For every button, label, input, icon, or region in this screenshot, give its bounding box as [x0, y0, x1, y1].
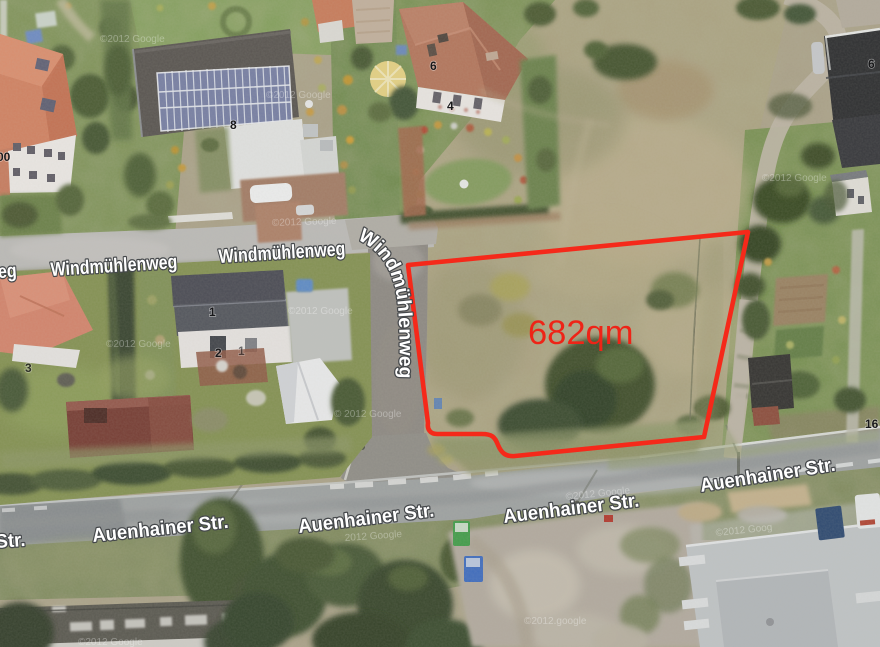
svg-text:©2012 Google: ©2012 Google — [100, 34, 165, 45]
svg-text:©2012 Google: ©2012 Google — [762, 173, 827, 184]
svg-text:©2012 Google: ©2012 Google — [288, 306, 353, 317]
svg-text:©2012 Google: ©2012 Google — [266, 90, 331, 101]
svg-text:16: 16 — [865, 417, 879, 431]
svg-text:©2012 Google: ©2012 Google — [272, 216, 337, 229]
svg-text:00: 00 — [0, 150, 11, 164]
svg-text:©2012 Google: ©2012 Google — [78, 637, 143, 647]
svg-text:6: 6 — [868, 57, 875, 71]
svg-text:682qm: 682qm — [528, 314, 634, 352]
svg-text:3: 3 — [25, 361, 32, 375]
svg-text:© 2012 Google: © 2012 Google — [334, 409, 402, 420]
svg-text:8: 8 — [230, 118, 237, 132]
svg-text:1: 1 — [238, 344, 245, 358]
svg-text:2: 2 — [215, 346, 222, 360]
svg-text:©2012.google: ©2012.google — [524, 616, 587, 627]
svg-text:1: 1 — [209, 305, 216, 319]
svg-text:weg: weg — [0, 259, 17, 283]
svg-text:6: 6 — [430, 59, 437, 73]
svg-text:4: 4 — [447, 99, 454, 113]
svg-text:Str.: Str. — [0, 530, 26, 554]
svg-text:©2012 Google: ©2012 Google — [106, 339, 171, 350]
